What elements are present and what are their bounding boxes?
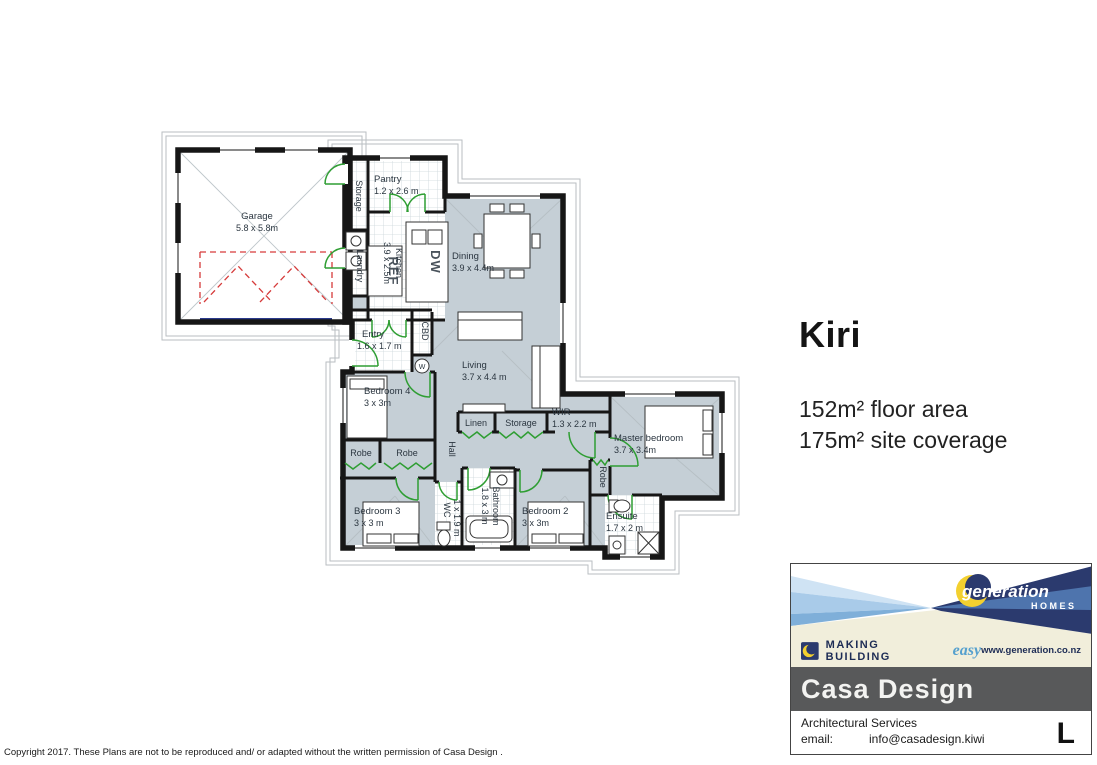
- tagline-script: easy: [953, 642, 981, 660]
- master-dims: 3.7 x 3.4m: [614, 445, 656, 455]
- homes-wordmark: HOMES: [1031, 601, 1077, 611]
- bedroom4-dims: 3 x 3m: [364, 398, 391, 408]
- hall-label: Hall: [447, 441, 457, 457]
- copyright-note: Copyright 2017. These Plans are not to b…: [4, 747, 503, 758]
- ensuite-dims: 1.7 x 2 m: [606, 523, 643, 533]
- plan-sheet: Garage 5.8 x 5.8m Storage Pantry 1.2 x 2…: [0, 0, 1097, 765]
- plan-areas: 152m² floor area 175m² site coverage: [799, 394, 1007, 456]
- website-text: www.generation.co.nz: [981, 645, 1081, 656]
- living-dims: 3.7 x 4.4 m: [462, 372, 507, 382]
- robe-b-label: Robe: [396, 448, 418, 458]
- plan-title: Kiri: [799, 314, 1007, 356]
- title-block: Kiri 152m² floor area 175m² site coverag…: [799, 314, 1007, 456]
- robe-master-label: Robe: [598, 466, 608, 488]
- garage-label: Garage: [241, 211, 273, 222]
- tagline-strip: MAKING BUILDING easy www.generation.co.n…: [791, 634, 1091, 667]
- floor-area-text: 152m² floor area: [799, 394, 1007, 425]
- email-label: email:: [801, 732, 869, 746]
- dishwasher-label: DW: [428, 250, 443, 274]
- wir-label: WIR: [552, 407, 571, 418]
- brand-block: generation HOMES MAKING BUILDING easy ww…: [790, 563, 1092, 755]
- mini-logo-icon: [801, 642, 819, 660]
- casa-subtitle: Architectural Services: [801, 716, 1081, 730]
- storage-hall-label: Storage: [505, 418, 537, 428]
- fridge-label: REF: [386, 257, 401, 286]
- wc-label: WC: [442, 503, 452, 518]
- garage-dims: 5.8 x 5.8m: [236, 223, 278, 233]
- bedroom4-label: Bedroom 4: [364, 386, 410, 397]
- storage-top-label: Storage: [354, 180, 364, 212]
- casa-email-row: email:info@casadesign.kiwi: [801, 732, 1081, 746]
- entry-label: Entry: [362, 329, 384, 340]
- linen-label: Linen: [465, 418, 487, 428]
- casa-design-title: Casa Design: [801, 674, 974, 705]
- dining-dims: 3.9 x 4.4m: [452, 263, 494, 273]
- master-label: Master bedroom: [614, 433, 683, 444]
- wir-dims: 1.3 x 2.2 m: [552, 419, 597, 429]
- bedroom2-dims: 3 x 3m: [522, 518, 549, 528]
- casa-info: Architectural Services email:info@casade…: [791, 711, 1091, 754]
- casa-design-bar: Casa Design: [791, 667, 1091, 711]
- laundry-label: Laundry: [355, 250, 365, 283]
- site-coverage-text: 175m² site coverage: [799, 425, 1007, 456]
- bathroom-label: Bathroom: [491, 486, 501, 525]
- ensuite-label: Ensuite: [606, 511, 638, 522]
- tv-unit: [463, 404, 505, 412]
- hot-water-label: W: [419, 364, 426, 371]
- living-label: Living: [462, 360, 487, 371]
- pantry-dims: 1.2 x 2.6 m: [374, 186, 419, 196]
- bedroom3-dims: 3 x 3 m: [354, 518, 384, 528]
- cbd-label: CBD: [420, 321, 430, 341]
- pantry-label: Pantry: [374, 174, 402, 185]
- generation-wordmark: generation: [961, 582, 1049, 601]
- entry-dims: 1.6 x 1.7 m: [357, 341, 402, 351]
- tagline-caps: MAKING BUILDING: [826, 639, 947, 663]
- email-value: info@casadesign.kiwi: [869, 732, 985, 746]
- floor-plan: Garage 5.8 x 5.8m Storage Pantry 1.2 x 2…: [150, 118, 750, 598]
- generation-banner-art: generation HOMES: [791, 564, 1091, 634]
- dining-label: Dining: [452, 251, 479, 262]
- wc-dims: 1 x 1.9 m: [452, 499, 462, 536]
- bedroom2-label: Bedroom 2: [522, 506, 568, 517]
- robe-a-label: Robe: [350, 448, 372, 458]
- sheet-letter: L: [1057, 717, 1075, 751]
- bedroom3-label: Bedroom 3: [354, 506, 400, 517]
- bathroom-dims: 1.8 x 3 m: [480, 487, 490, 524]
- generation-banner: generation HOMES: [791, 564, 1091, 634]
